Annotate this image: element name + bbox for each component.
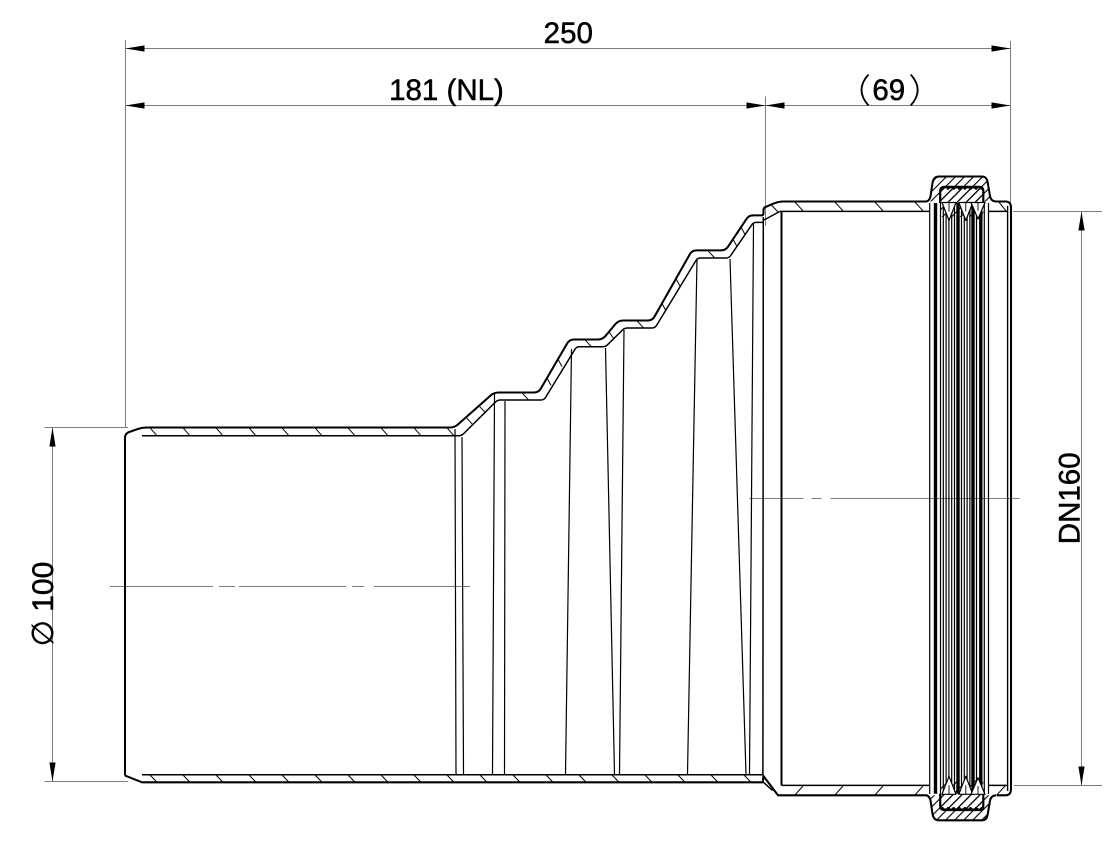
svg-text:∅ 100: ∅ 100 xyxy=(27,562,60,647)
svg-text:250: 250 xyxy=(544,17,593,50)
svg-text:DN160: DN160 xyxy=(1053,452,1086,544)
svg-text:69: 69 xyxy=(872,74,905,107)
svg-text:181 (NL): 181 (NL) xyxy=(389,74,504,107)
